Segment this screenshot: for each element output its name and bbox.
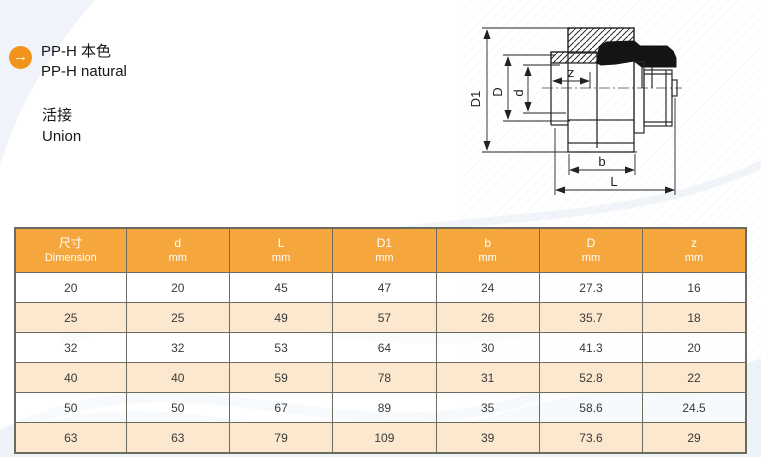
col-header-line2: mm — [437, 251, 539, 265]
table-cell: 32 — [126, 333, 229, 363]
material-title-en: PP-H natural — [41, 62, 127, 82]
table-cell: 30 — [436, 333, 539, 363]
product-name-cn: 活接 — [42, 105, 81, 126]
table-cell: 40 — [126, 363, 229, 393]
table-cell: 58.6 — [539, 393, 642, 423]
table-cell: 53 — [229, 333, 332, 363]
table-row: 40 40 59 78 31 52.8 22 — [15, 363, 746, 393]
catalog-page: → PP-H 本色 PP-H natural 活接 Union — [0, 0, 761, 457]
table-cell: 22 — [643, 363, 746, 393]
table-cell: 49 — [229, 303, 332, 333]
col-header-line1: b — [437, 236, 539, 251]
material-title: PP-H 本色 PP-H natural — [41, 42, 127, 82]
table-row: 32 32 53 64 30 41.3 20 — [15, 333, 746, 363]
table-cell: 59 — [229, 363, 332, 393]
col-header-z: z mm — [643, 228, 746, 273]
technical-drawing: D1 D d z b L — [430, 0, 761, 220]
col-header-b: b mm — [436, 228, 539, 273]
col-header-line1: z — [643, 236, 745, 251]
table-cell: 25 — [126, 303, 229, 333]
table-cell: 24.5 — [643, 393, 746, 423]
table-row: 25 25 49 57 26 35.7 18 — [15, 303, 746, 333]
product-name-en: Union — [42, 126, 81, 147]
col-header-dimension: 尺寸 Dimension — [15, 228, 126, 273]
table-cell: 57 — [333, 303, 436, 333]
table-cell: 20 — [126, 273, 229, 303]
table-cell: 20 — [643, 333, 746, 363]
socket-inlet-outline — [551, 52, 597, 125]
col-header-line1: 尺寸 — [16, 236, 126, 251]
table-cell: 39 — [436, 423, 539, 454]
table-header-row: 尺寸 Dimension d mm L mm D1 mm — [15, 228, 746, 273]
table-cell: 89 — [333, 393, 436, 423]
dim-label-d: d — [511, 89, 526, 96]
table-row: 20 20 45 47 24 27.3 16 — [15, 273, 746, 303]
table-cell: 41.3 — [539, 333, 642, 363]
table-cell: 50 — [126, 393, 229, 423]
col-header-D1: D1 mm — [333, 228, 436, 273]
col-header-line1: L — [230, 236, 332, 251]
table-row: 63 63 79 109 39 73.6 29 — [15, 423, 746, 454]
table-cell: 73.6 — [539, 423, 642, 454]
dim-label-D: D — [490, 87, 505, 96]
col-header-line2: mm — [540, 251, 642, 265]
table-cell: 40 — [15, 363, 126, 393]
table-cell: 26 — [436, 303, 539, 333]
col-header-line1: D1 — [333, 236, 435, 251]
table-cell: 25 — [15, 303, 126, 333]
col-header-d: d mm — [126, 228, 229, 273]
table-cell: 47 — [333, 273, 436, 303]
product-name: 活接 Union — [42, 105, 81, 147]
table-cell: 78 — [333, 363, 436, 393]
material-title-cn: PP-H 本色 — [41, 42, 127, 62]
col-header-line2: mm — [127, 251, 229, 265]
dim-label-b: b — [598, 154, 605, 169]
threaded-outlet-outline — [634, 62, 677, 133]
table-cell: 52.8 — [539, 363, 642, 393]
male-adapter-section — [597, 41, 676, 67]
table-cell: 18 — [643, 303, 746, 333]
table-cell: 67 — [229, 393, 332, 423]
dim-label-L: L — [610, 174, 617, 189]
col-header-line2: Dimension — [16, 251, 126, 265]
table-cell: 45 — [229, 273, 332, 303]
arrow-icon: → — [13, 49, 28, 64]
col-header-line2: mm — [230, 251, 332, 265]
col-header-line2: mm — [333, 251, 435, 265]
table-cell: 20 — [15, 273, 126, 303]
table-cell: 64 — [333, 333, 436, 363]
arrow-bullet-icon: → — [9, 46, 32, 69]
col-header-L: L mm — [229, 228, 332, 273]
dim-label-D1: D1 — [468, 91, 483, 108]
col-header-line1: D — [540, 236, 642, 251]
col-header-line1: d — [127, 236, 229, 251]
table-cell: 79 — [229, 423, 332, 454]
table-row: 50 50 67 89 35 58.6 24.5 — [15, 393, 746, 423]
table-cell: 29 — [643, 423, 746, 454]
col-header-D: D mm — [539, 228, 642, 273]
table-cell: 16 — [643, 273, 746, 303]
table-cell: 24 — [436, 273, 539, 303]
table-cell: 35.7 — [539, 303, 642, 333]
dim-label-z: z — [568, 65, 575, 80]
table-cell: 32 — [15, 333, 126, 363]
table-cell: 35 — [436, 393, 539, 423]
col-header-line2: mm — [643, 251, 745, 265]
table-cell: 27.3 — [539, 273, 642, 303]
table-cell: 50 — [15, 393, 126, 423]
table-cell: 63 — [15, 423, 126, 454]
table-cell: 63 — [126, 423, 229, 454]
table-cell: 109 — [333, 423, 436, 454]
table-cell: 31 — [436, 363, 539, 393]
dimension-table: 尺寸 Dimension d mm L mm D1 mm — [14, 227, 747, 454]
